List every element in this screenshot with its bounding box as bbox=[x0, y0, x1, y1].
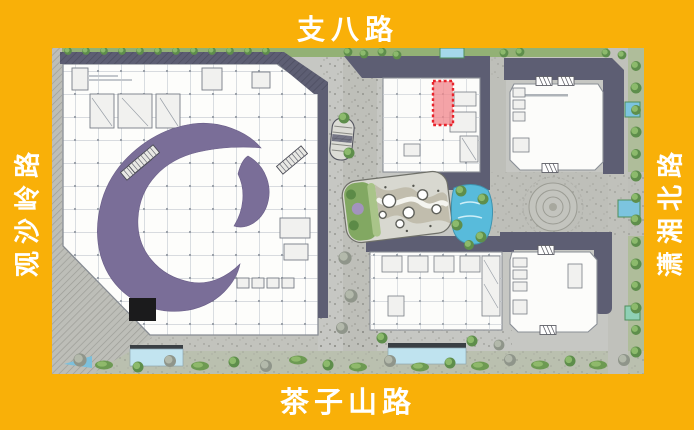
road-label-left: 观沙岭路 bbox=[8, 145, 45, 277]
north-east-building bbox=[504, 58, 624, 174]
mall-entrance-void bbox=[129, 298, 156, 321]
road-label-right: 潇湘北路 bbox=[651, 145, 688, 277]
road-label-top: 支八路 bbox=[52, 8, 644, 48]
road-label-bottom: 茶子山路 bbox=[52, 379, 644, 421]
central-pavilion bbox=[340, 170, 453, 244]
site-plan-svg bbox=[52, 48, 644, 374]
site-plan-map bbox=[52, 48, 644, 374]
south-east-building bbox=[500, 232, 612, 335]
south-middle-building bbox=[366, 236, 514, 330]
highlighted-unit-marker bbox=[433, 81, 453, 125]
poster-frame: 支八路 茶子山路 观沙岭路 潇湘北路 bbox=[0, 0, 694, 430]
